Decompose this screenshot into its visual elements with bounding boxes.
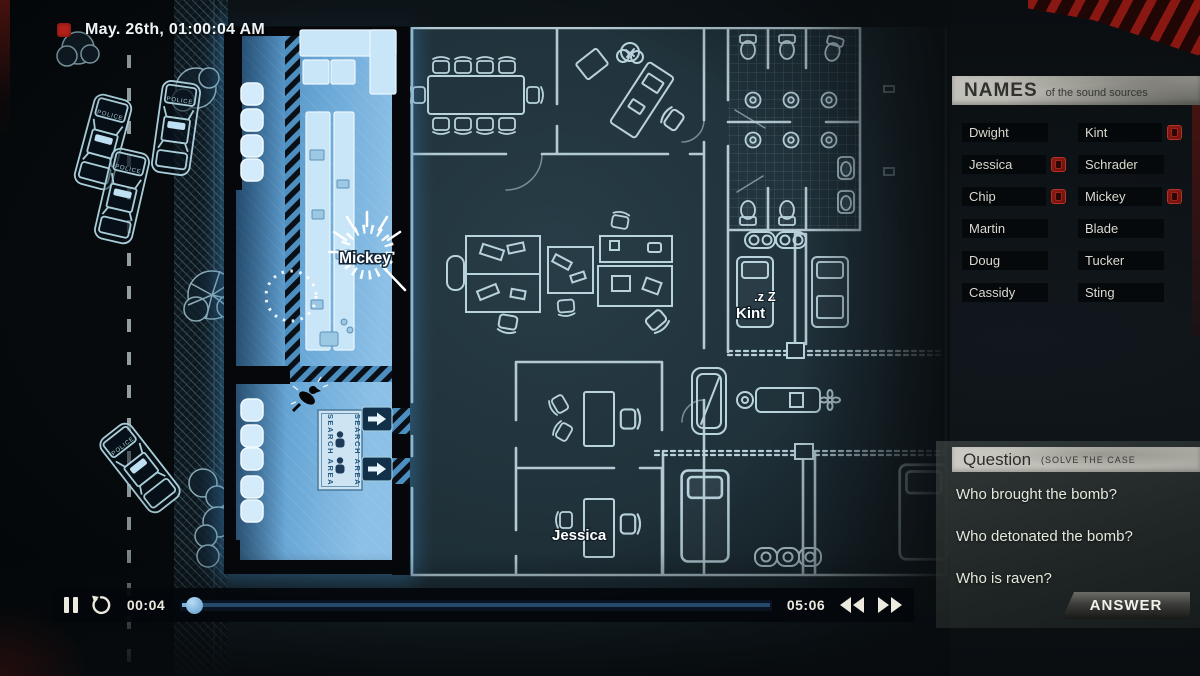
fast-forward-button[interactable] (877, 597, 902, 613)
svg-text:SEARCH AREA: SEARCH AREA (326, 414, 335, 486)
svg-text:Mickey: Mickey (339, 250, 391, 267)
sleep-zz-icon: .z Z (754, 289, 776, 304)
name-tag-schrader[interactable]: Schrader (1078, 155, 1164, 174)
voice-indicator-icon (1167, 189, 1182, 204)
restart-button[interactable] (90, 594, 112, 616)
names-panel: NAMES of the sound sources Dwight Kint J… (948, 76, 1200, 302)
voice-indicator-icon (1051, 189, 1066, 204)
record-icon (57, 23, 71, 37)
voice-indicator-icon (1051, 157, 1066, 172)
pause-button[interactable] (64, 597, 78, 613)
voice-indicator-icon (1167, 125, 1182, 140)
svg-text:Kint: Kint (736, 305, 765, 322)
question-item[interactable]: Who detonated the bomb? (956, 528, 1200, 545)
names-panel-header: NAMES of the sound sources (952, 76, 1200, 105)
name-tag-kint[interactable]: Kint (1078, 123, 1162, 142)
name-tag-blade[interactable]: Blade (1078, 219, 1164, 238)
corner-stripes-decoration (1028, 0, 1200, 56)
grunge-decoration (0, 0, 10, 140)
character-marker-jessica: Jessica (552, 527, 607, 544)
name-tag-cassidy[interactable]: Cassidy (962, 283, 1048, 302)
fast-forward-icon (877, 597, 902, 613)
current-time: 00:04 (124, 597, 168, 613)
game-screen: POLICE POLICE POLICE POLICE (0, 0, 1200, 676)
question-subtitle: (SOLVE THE CASE (1041, 455, 1136, 465)
name-tag-mickey[interactable]: Mickey (1078, 187, 1162, 206)
exit-arrow-icon (362, 407, 392, 431)
question-list: Who brought the bomb? Who detonated the … (936, 486, 1200, 587)
rewind-button[interactable] (840, 597, 865, 613)
exit-arrow-icon (362, 457, 392, 481)
names-subtitle: of the sound sources (1046, 87, 1148, 99)
timestamp-text: May. 26th, 01:00:04 AM (85, 21, 265, 39)
search-area-sign: SEARCH AREA SEARCH AREA (318, 410, 362, 490)
answer-button[interactable]: ANSWER (1062, 592, 1190, 619)
timeline-track[interactable] (180, 600, 772, 611)
restart-icon (90, 594, 112, 616)
names-title: NAMES (964, 76, 1038, 105)
timeline-line (182, 603, 770, 607)
question-item[interactable]: Who brought the bomb? (956, 486, 1200, 503)
blueprint-map[interactable]: POLICE POLICE POLICE POLICE (0, 0, 950, 676)
street: POLICE POLICE POLICE POLICE (0, 0, 239, 676)
timeline-handle[interactable] (186, 597, 203, 614)
svg-text:Jessica: Jessica (552, 527, 607, 544)
name-tag-tucker[interactable]: Tucker (1078, 251, 1164, 270)
names-grid: Dwight Kint Jessica Schrader Chip Mickey… (962, 123, 1200, 302)
question-panel: Question (SOLVE THE CASE Who brought the… (936, 441, 1200, 628)
name-tag-chip[interactable]: Chip (962, 187, 1046, 206)
total-time: 05:06 (784, 597, 828, 613)
playback-bar: 00:04 05:06 (52, 588, 914, 622)
recording-timestamp: May. 26th, 01:00:04 AM (57, 21, 265, 39)
rewind-icon (840, 597, 865, 613)
name-tag-martin[interactable]: Martin (962, 219, 1048, 238)
name-tag-jessica[interactable]: Jessica (962, 155, 1046, 174)
hazard-stripe-wall (285, 32, 300, 366)
highlighted-room: SEARCH AREA SEARCH AREA (216, 18, 416, 584)
name-tag-dwight[interactable]: Dwight (962, 123, 1048, 142)
question-title: Question (963, 450, 1031, 470)
svg-text:SEARCH AREA: SEARCH AREA (353, 414, 362, 486)
name-tag-doug[interactable]: Doug (962, 251, 1048, 270)
question-item[interactable]: Who is raven? (956, 570, 1200, 587)
bathrooms (728, 28, 860, 230)
name-tag-sting[interactable]: Sting (1078, 283, 1164, 302)
question-panel-header: Question (SOLVE THE CASE (952, 447, 1200, 472)
